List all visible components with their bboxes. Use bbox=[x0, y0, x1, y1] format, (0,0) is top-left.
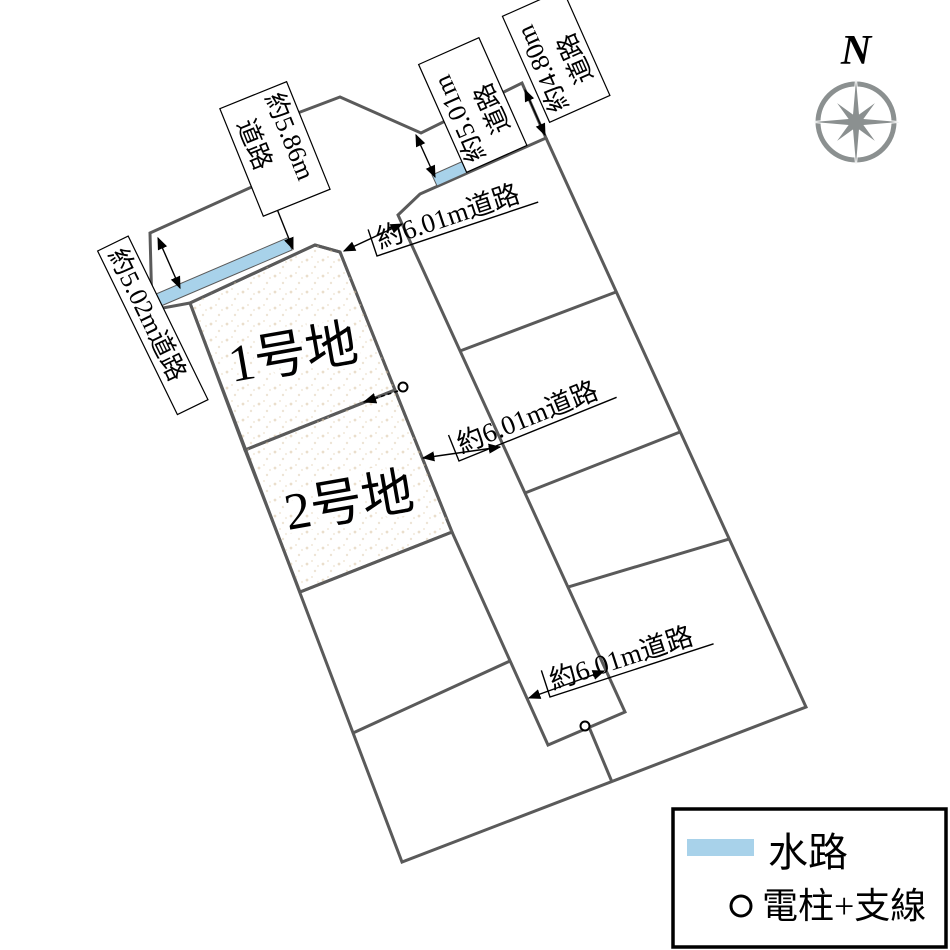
road-label-501: 約5.01m 道路 bbox=[419, 38, 527, 173]
divider-right-3 bbox=[568, 539, 729, 587]
legend: 水路 電柱+支線 bbox=[673, 809, 946, 947]
road-label-601-mid-text: 約6.01m道路 bbox=[452, 375, 602, 459]
dim-arrow-502 bbox=[158, 238, 180, 288]
legend-pole-icon bbox=[731, 896, 751, 916]
legend-water-swatch bbox=[687, 839, 754, 856]
divider-lot3-lot4 bbox=[353, 661, 510, 733]
compass-north-label: N bbox=[840, 28, 873, 74]
legend-water-label: 水路 bbox=[768, 830, 848, 875]
utility-pole-icon-lower bbox=[581, 722, 590, 731]
road-label-601-bot-text: 約6.01m道路 bbox=[545, 621, 696, 696]
divider-right-1 bbox=[460, 292, 616, 351]
site-plan-page: 約5.02m道路 約5.86m 道路 約5.01m 道路 約4.80m 道路 約… bbox=[0, 0, 950, 950]
dim-arrow-501 bbox=[416, 135, 435, 177]
road-label-502-text: 約5.02m道路 bbox=[102, 244, 191, 386]
compass-star-icon bbox=[808, 74, 904, 170]
compass-rose: N bbox=[808, 28, 904, 170]
road-label-601-top-text: 約6.01m道路 bbox=[372, 179, 523, 255]
road-label-601-mid: 約6.01m道路 bbox=[448, 370, 617, 461]
divider-bottom bbox=[589, 727, 612, 782]
utility-pole-icon-upper bbox=[399, 383, 408, 392]
site-plan-drawing: 約5.02m道路 約5.86m 道路 約5.01m 道路 約4.80m 道路 約… bbox=[0, 0, 950, 950]
road-label-601-bot: 約6.01m道路 bbox=[541, 615, 714, 697]
road-label-502: 約5.02m道路 bbox=[98, 236, 208, 414]
road-label-480: 約4.80m 道路 bbox=[502, 0, 609, 122]
divider-right-2 bbox=[525, 432, 680, 493]
road-label-586: 約5.86m 道路 bbox=[220, 82, 330, 217]
legend-pole-label: 電柱+支線 bbox=[762, 886, 926, 926]
road-label-601-top: 約6.01m道路 bbox=[367, 174, 538, 256]
